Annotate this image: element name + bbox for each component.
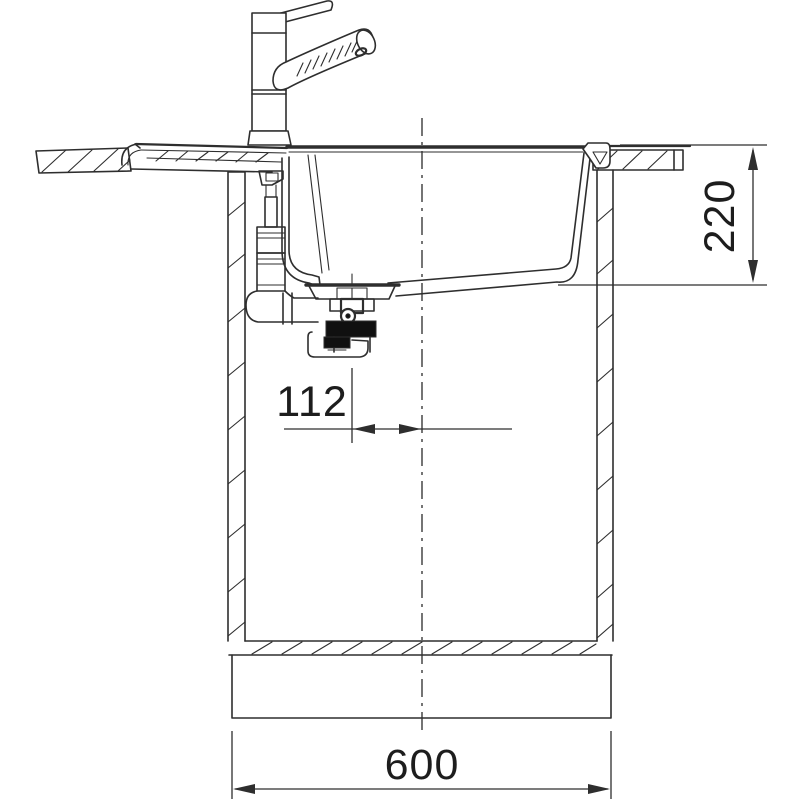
sink-bowl xyxy=(282,150,591,296)
dimension-label-depth: 220 xyxy=(696,179,744,254)
arrowhead-right-icon xyxy=(399,424,421,434)
arrowhead-right-icon xyxy=(588,784,610,794)
arrowhead-left-icon xyxy=(233,784,255,794)
sink-flange-right xyxy=(583,143,610,168)
drain-assembly xyxy=(306,274,399,357)
faucet-base xyxy=(248,131,291,145)
drain-valve-block xyxy=(326,321,376,337)
arrowhead-left-icon xyxy=(353,424,375,434)
faucet xyxy=(248,1,379,145)
countertop-left-section xyxy=(36,148,131,173)
faucet-spout xyxy=(273,27,379,90)
countertop-left-hatch xyxy=(42,149,130,172)
dimension-label-drain-offset: 112 xyxy=(276,378,348,426)
cabinet-left-wall xyxy=(228,172,245,641)
sink-basin xyxy=(122,143,610,296)
cabinet-bottom-panel xyxy=(229,641,612,655)
dimension-drain-offset: 112 xyxy=(276,368,512,443)
arrowhead-down-icon xyxy=(748,260,758,283)
sink-installation-diagram: 220 112 600 xyxy=(0,0,800,800)
dimension-width: 600 xyxy=(232,731,611,799)
technical-drawing: 220 112 600 xyxy=(0,0,800,800)
arrowhead-up-icon xyxy=(748,147,758,170)
sink-drainboard xyxy=(131,144,287,172)
bracket-insert xyxy=(324,337,350,348)
overflow-elbow xyxy=(246,291,318,322)
dimension-label-width: 600 xyxy=(385,741,460,789)
cabinet-right-wall xyxy=(597,170,613,641)
